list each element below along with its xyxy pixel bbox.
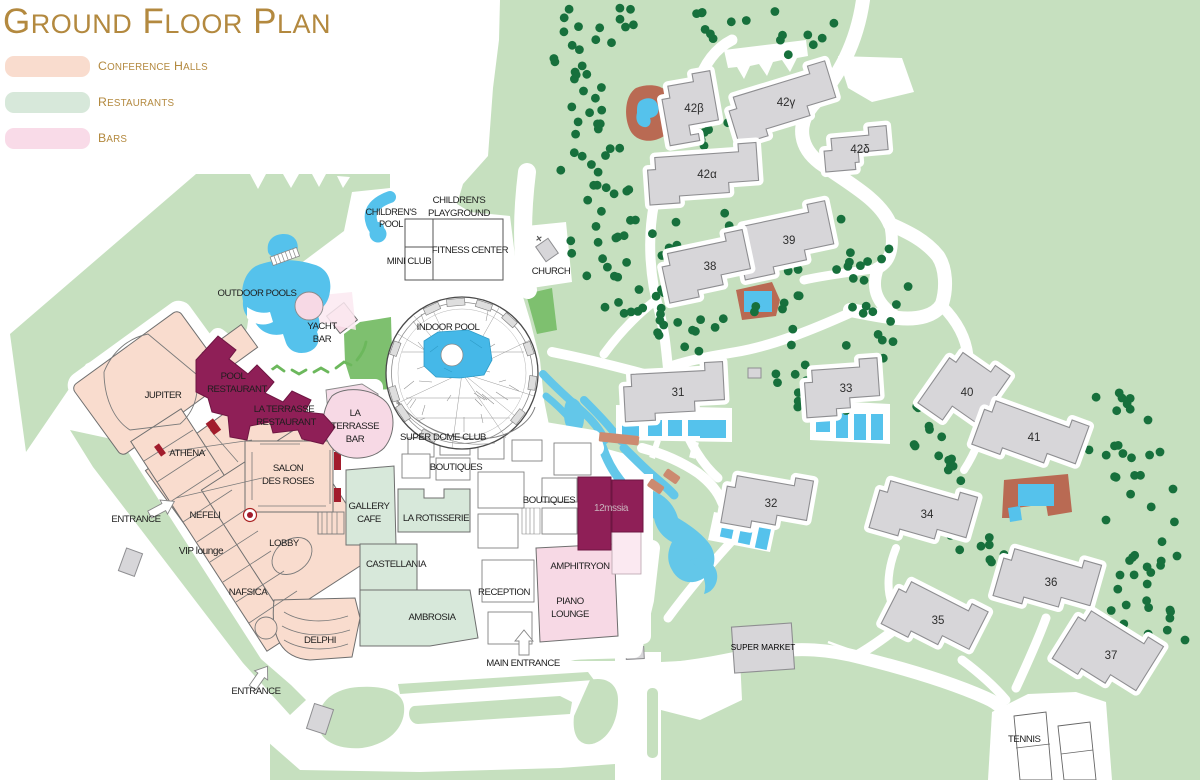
svg-text:NAFSICA: NAFSICA	[229, 587, 268, 598]
svg-text:INDOOR POOL: INDOOR POOL	[417, 322, 481, 333]
svg-text:LA ROTISSERIE: LA ROTISSERIE	[403, 513, 469, 524]
svg-text:CONFERENCE HALLS: CONFERENCE HALLS	[98, 59, 208, 73]
svg-text:ATHENA: ATHENA	[169, 448, 206, 459]
svg-text:LOBBY: LOBBY	[269, 538, 300, 549]
svg-text:TERRASSE: TERRASSE	[331, 421, 379, 432]
svg-text:LA: LA	[350, 408, 362, 419]
svg-text:AMPHITRYON: AMPHITRYON	[550, 561, 610, 572]
svg-text:12mssia: 12mssia	[594, 503, 629, 514]
svg-text:CHURCH: CHURCH	[532, 266, 571, 277]
svg-text:DES ROSES: DES ROSES	[262, 476, 314, 487]
svg-text:RECEPTION: RECEPTION	[478, 587, 530, 598]
svg-text:40: 40	[961, 387, 974, 399]
svg-text:38: 38	[704, 261, 717, 273]
svg-text:ENTRANCE: ENTRANCE	[231, 686, 280, 697]
svg-text:35: 35	[932, 615, 945, 627]
svg-text:BAR: BAR	[346, 434, 365, 445]
svg-text:33: 33	[840, 383, 853, 395]
svg-text:OUTDOOR POOLS: OUTDOOR POOLS	[218, 288, 297, 299]
svg-text:34: 34	[921, 509, 934, 521]
svg-text:42β: 42β	[684, 103, 704, 115]
svg-text:31: 31	[672, 387, 685, 399]
svg-text:SALON: SALON	[273, 463, 304, 474]
svg-text:39: 39	[783, 235, 796, 247]
svg-text:41: 41	[1028, 432, 1041, 444]
svg-text:SUPER DOME CLUB: SUPER DOME CLUB	[400, 432, 486, 443]
svg-text:POOL: POOL	[221, 371, 247, 382]
svg-text:42δ: 42δ	[850, 144, 869, 156]
svg-text:CAFE: CAFE	[357, 514, 381, 525]
svg-text:42α: 42α	[697, 169, 717, 181]
svg-text:DELPHI: DELPHI	[304, 635, 336, 646]
svg-text:BAR: BAR	[313, 334, 332, 345]
svg-text:LA TERRASSE: LA TERRASSE	[254, 404, 315, 415]
svg-text:PIANO: PIANO	[556, 596, 584, 607]
svg-text:YACHT: YACHT	[307, 321, 337, 332]
svg-text:CHILDREN'S: CHILDREN'S	[366, 207, 417, 217]
svg-text:LOUNGE: LOUNGE	[551, 609, 589, 620]
svg-text:NEFELI: NEFELI	[190, 510, 221, 521]
svg-text:RESTAURANT: RESTAURANT	[207, 384, 267, 395]
svg-text:37: 37	[1105, 650, 1118, 662]
svg-text:MINI CLUB: MINI CLUB	[387, 256, 432, 267]
svg-text:36: 36	[1045, 577, 1058, 589]
svg-text:GALLERY: GALLERY	[349, 501, 391, 512]
svg-text:CASTELLANIA: CASTELLANIA	[366, 559, 427, 570]
svg-text:RESTAURANTS: RESTAURANTS	[98, 95, 174, 109]
svg-text:RESTAURANT: RESTAURANT	[256, 417, 316, 428]
svg-text:BARS: BARS	[98, 131, 127, 145]
svg-text:MAIN ENTRANCE: MAIN ENTRANCE	[486, 658, 560, 669]
svg-text:JUPITER: JUPITER	[145, 390, 182, 401]
svg-text:ENTRANCE: ENTRANCE	[111, 514, 160, 525]
svg-text:TENNIS: TENNIS	[1008, 734, 1041, 745]
svg-text:BOUTIQUES: BOUTIQUES	[430, 462, 483, 473]
svg-text:PLAYGROUND: PLAYGROUND	[428, 208, 490, 219]
svg-text:BOUTIQUES: BOUTIQUES	[523, 495, 576, 506]
svg-text:32: 32	[765, 498, 778, 510]
svg-text:42γ: 42γ	[777, 97, 796, 109]
svg-text:FITNESS CENTER: FITNESS CENTER	[432, 245, 509, 256]
svg-text:SUPER MARKET: SUPER MARKET	[731, 643, 796, 652]
svg-text:POOL: POOL	[379, 219, 403, 229]
svg-text:CHILDREN'S: CHILDREN'S	[433, 195, 486, 206]
svg-text:AMBROSIA: AMBROSIA	[408, 612, 456, 623]
svg-text:VIP lounge: VIP lounge	[179, 546, 224, 557]
